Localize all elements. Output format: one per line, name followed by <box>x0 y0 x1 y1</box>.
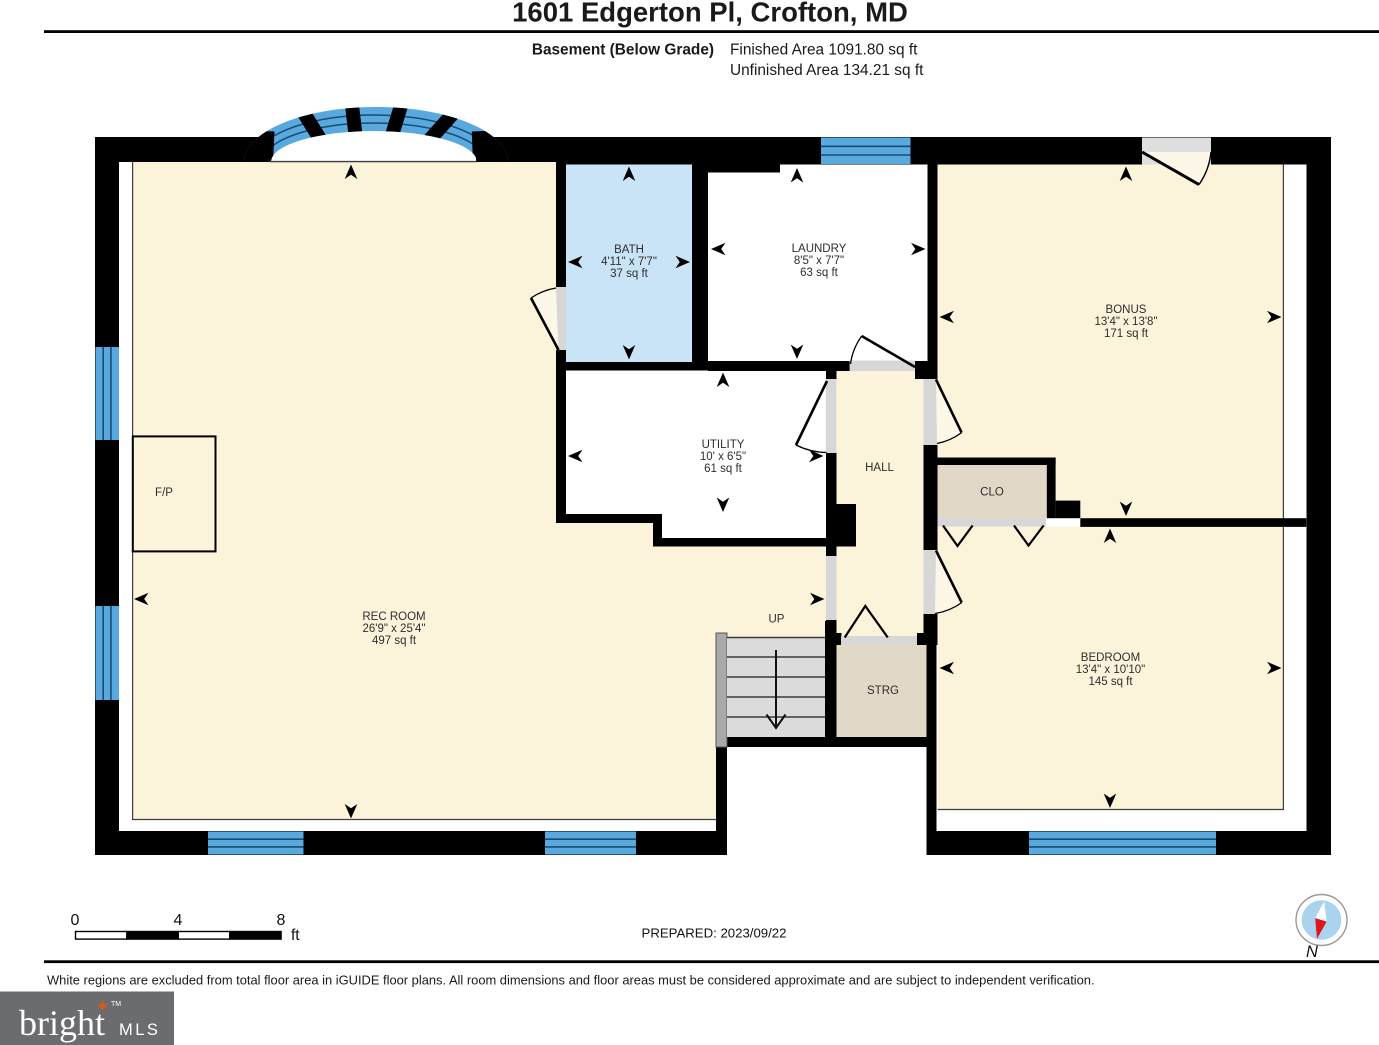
svg-text:171 sq ft: 171 sq ft <box>1104 328 1149 340</box>
svg-text:4'11" x 7'7": 4'11" x 7'7" <box>601 256 657 268</box>
svg-text:1601 Edgerton Pl, Crofton, MD: 1601 Edgerton Pl, Crofton, MD <box>512 0 908 28</box>
svg-text:4: 4 <box>174 912 183 929</box>
svg-text:Finished Area 1091.80 sq ft: Finished Area 1091.80 sq ft <box>730 42 918 59</box>
svg-text:ft: ft <box>291 927 300 944</box>
svg-text:Unfinished Area 134.21 sq ft: Unfinished Area 134.21 sq ft <box>730 62 924 79</box>
svg-text:37 sq ft: 37 sq ft <box>610 268 649 280</box>
svg-text:BEDROOM: BEDROOM <box>1081 652 1140 664</box>
svg-text:10' x 6'5": 10' x 6'5" <box>700 451 746 463</box>
svg-text:26'9" x 25'4": 26'9" x 25'4" <box>362 623 425 635</box>
svg-text:145 sq ft: 145 sq ft <box>1088 676 1133 688</box>
svg-text:PREPARED: 2023/09/22: PREPARED: 2023/09/22 <box>642 926 787 941</box>
svg-text:0: 0 <box>71 912 80 929</box>
svg-text:White regions are excluded fro: White regions are excluded from total fl… <box>47 973 1095 988</box>
svg-text:Basement (Below Grade): Basement (Below Grade) <box>532 42 714 59</box>
svg-text:BATH: BATH <box>614 244 644 256</box>
svg-text:REC ROOM: REC ROOM <box>362 611 425 623</box>
svg-text:8: 8 <box>277 912 286 929</box>
svg-text:N: N <box>1306 943 1318 961</box>
svg-text:63 sq ft: 63 sq ft <box>800 267 839 279</box>
svg-text:HALL: HALL <box>865 462 894 474</box>
svg-text:TM: TM <box>111 1001 121 1008</box>
svg-text:8'5" x 7'7": 8'5" x 7'7" <box>794 255 844 267</box>
svg-text:13'4" x 13'8": 13'4" x 13'8" <box>1094 316 1157 328</box>
svg-text:bright: bright <box>19 1003 105 1043</box>
svg-text:BONUS: BONUS <box>1106 304 1147 316</box>
svg-text:CLO: CLO <box>980 487 1004 499</box>
svg-text:61 sq ft: 61 sq ft <box>704 463 743 475</box>
svg-text:UTILITY: UTILITY <box>702 439 745 451</box>
svg-text:13'4" x 10'10": 13'4" x 10'10" <box>1076 664 1145 676</box>
svg-text:F/P: F/P <box>155 487 173 499</box>
svg-text:MLS: MLS <box>119 1021 160 1039</box>
svg-text:UP: UP <box>769 614 785 626</box>
svg-text:LAUNDRY: LAUNDRY <box>792 243 847 255</box>
svg-text:STRG: STRG <box>867 685 899 697</box>
svg-text:497 sq ft: 497 sq ft <box>372 635 417 647</box>
